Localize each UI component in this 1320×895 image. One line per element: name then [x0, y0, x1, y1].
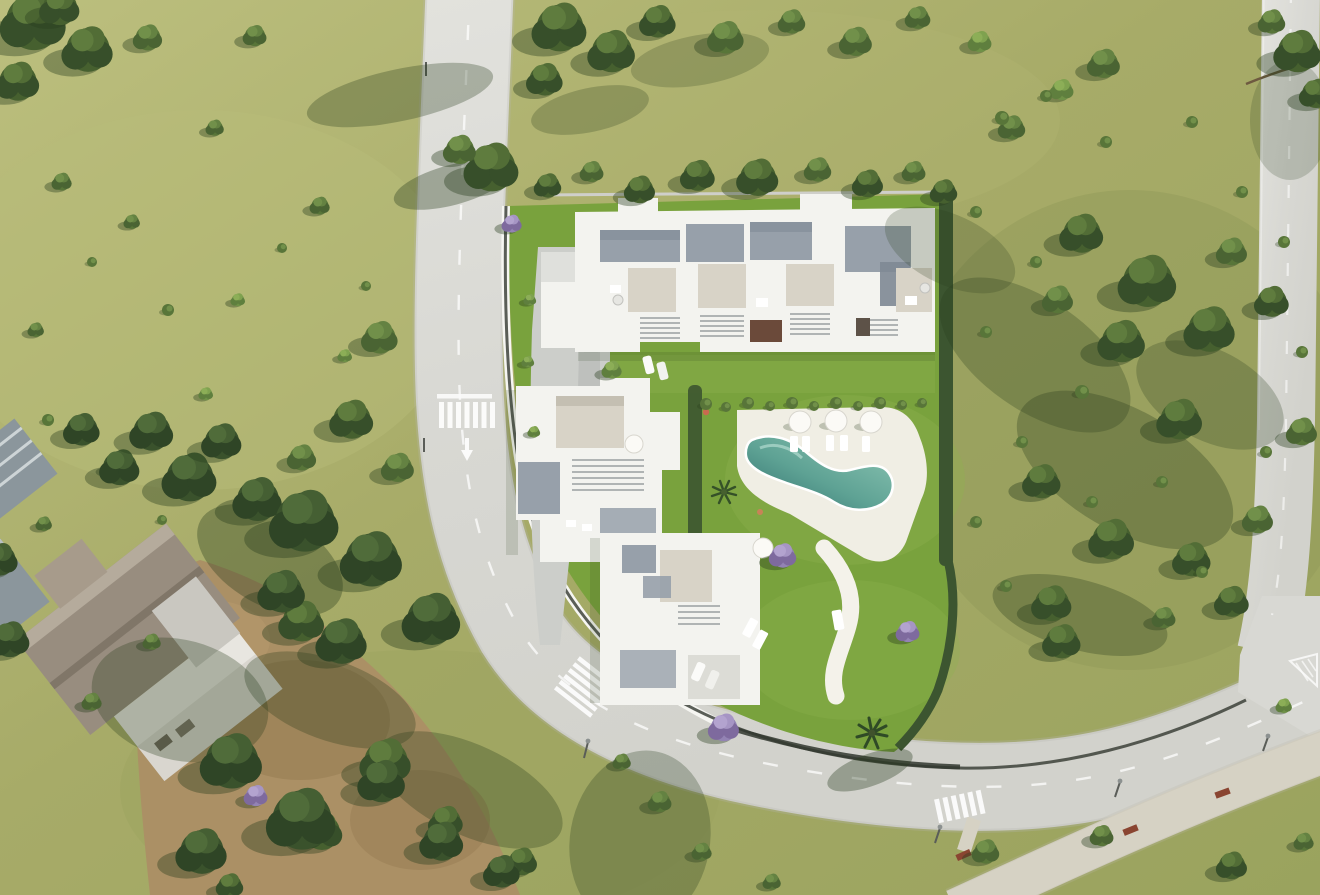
tree-canopy: [539, 175, 551, 187]
roof-table: [920, 283, 930, 293]
aerial-scene: [0, 0, 1320, 895]
tree-canopy: [695, 844, 704, 853]
tree-canopy: [1097, 521, 1117, 541]
tree-canopy: [449, 137, 463, 151]
gray-roof: [643, 576, 671, 598]
tree-canopy: [1093, 51, 1107, 65]
bush-highlight: [1000, 113, 1007, 120]
tree-canopy: [212, 737, 239, 764]
tree-canopy: [209, 426, 227, 444]
tree-canopy: [138, 26, 151, 39]
tree-canopy: [209, 121, 217, 129]
bush-highlight: [1265, 448, 1271, 454]
tree-canopy: [1222, 853, 1236, 867]
tree-canopy: [31, 323, 38, 330]
tree-canopy: [630, 177, 644, 191]
bush-highlight: [813, 402, 818, 407]
wood-deck: [750, 320, 782, 342]
tree-canopy: [366, 763, 387, 784]
roof-ridge-shade: [600, 230, 680, 240]
tree-canopy: [542, 6, 566, 30]
tree-canopy: [221, 875, 233, 887]
bush-highlight: [1005, 582, 1011, 588]
bush-highlight: [705, 400, 711, 406]
tree-canopy: [744, 161, 762, 179]
tree-canopy: [490, 857, 506, 873]
tree-canopy: [774, 545, 786, 557]
tree-canopy: [185, 831, 207, 853]
gray-roof: [518, 462, 560, 514]
bush-highlight: [975, 208, 981, 214]
tree-canopy: [1029, 466, 1046, 483]
tree-canopy: [530, 427, 536, 433]
bush-highlight: [1283, 238, 1289, 244]
roof-table: [613, 295, 623, 305]
tree-canopy: [505, 216, 514, 225]
tree-canopy: [340, 350, 346, 356]
tree-canopy: [809, 159, 821, 171]
garage-roof: [541, 252, 577, 282]
bush-highlight: [1201, 568, 1207, 574]
bush-highlight: [281, 244, 286, 249]
bush-highlight: [791, 399, 797, 405]
tree-canopy: [1048, 287, 1062, 301]
gray-roof: [686, 224, 744, 262]
tree-canopy: [172, 456, 196, 480]
tree-canopy: [512, 849, 526, 863]
tree-canopy: [55, 174, 64, 183]
bush-highlight: [769, 402, 774, 407]
tree-canopy: [845, 29, 859, 43]
tree-canopy: [1248, 507, 1262, 521]
tree-canopy: [906, 162, 916, 172]
tree-canopy: [616, 755, 624, 763]
tree-canopy: [1292, 419, 1306, 433]
tree-canopy: [935, 181, 947, 193]
tree-canopy: [714, 23, 730, 39]
tree-canopy: [368, 323, 384, 339]
pool-umbrella: [860, 411, 882, 433]
tree-canopy: [1094, 826, 1104, 836]
bush-highlight: [91, 258, 96, 263]
tree-canopy: [1165, 401, 1185, 421]
tree-canopy: [474, 146, 498, 170]
tree-canopy: [1068, 216, 1087, 235]
tree-canopy: [596, 33, 617, 54]
pool-umbrella: [789, 411, 811, 433]
tree-canopy: [282, 494, 312, 524]
tree-canopy: [325, 621, 347, 643]
bush-highlight: [365, 282, 370, 287]
bush-highlight: [1161, 478, 1167, 484]
tree-canopy: [39, 517, 46, 524]
outdoor-furniture: [856, 318, 870, 336]
tree-canopy: [428, 824, 447, 843]
bush-highlight: [857, 402, 862, 407]
pool-umbrellas: [783, 410, 882, 433]
tree-canopy: [766, 875, 774, 883]
tree-canopy: [1054, 80, 1064, 90]
bush-highlight: [725, 403, 730, 408]
tree-canopy: [1179, 544, 1196, 561]
roof-furniture: [905, 296, 917, 305]
tree-canopy: [783, 11, 795, 23]
tree-canopy: [313, 198, 322, 207]
building-shadow: [578, 352, 935, 361]
bush-highlight: [1045, 92, 1051, 98]
tree-canopy: [526, 295, 532, 301]
tree-canopy: [1156, 608, 1166, 618]
beige-roof: [628, 268, 676, 312]
tree-canopy: [352, 535, 379, 562]
tree-canopy: [533, 65, 549, 81]
terrace-furniture: [582, 524, 592, 531]
bush-highlight: [1191, 118, 1197, 124]
bush-highlight: [1080, 387, 1087, 394]
bush-highlight: [1035, 258, 1041, 264]
tree-canopy: [1222, 239, 1236, 253]
tree-canopy: [85, 694, 94, 703]
tree-canopy: [687, 162, 702, 177]
bush-highlight: [901, 401, 906, 406]
bush-highlight: [985, 328, 991, 334]
tree-canopy: [972, 32, 982, 42]
tree-canopy: [584, 162, 594, 172]
beige-roof: [698, 264, 746, 308]
tree-canopy: [858, 171, 872, 185]
bush-highlight: [1105, 138, 1111, 144]
tree-canopy: [233, 294, 239, 300]
beige-roof: [786, 264, 834, 306]
tree-canopy: [146, 635, 154, 643]
bush-highlight: [879, 399, 885, 405]
tree-canopy: [279, 792, 309, 822]
gray-roof: [620, 650, 676, 688]
tree-canopy: [646, 7, 662, 23]
tree-canopy: [1129, 258, 1155, 284]
tree-canopy: [107, 452, 125, 470]
tree-canopy: [138, 414, 157, 433]
roof-furniture: [610, 285, 621, 293]
tree-canopy: [387, 455, 401, 469]
terrace-furniture: [566, 520, 576, 527]
bush-highlight: [47, 416, 53, 422]
bush-highlight: [161, 516, 166, 521]
tree-canopy: [1261, 288, 1276, 303]
tree-canopy: [369, 741, 391, 763]
aerial-render-stage: Top-down aerial render of a modern white…: [0, 0, 1320, 895]
tree-canopy: [1193, 309, 1215, 331]
south-villa-cluster: [590, 533, 773, 705]
tree-canopy: [242, 480, 264, 502]
tree-canopy: [127, 215, 134, 222]
bush-highlight: [1091, 498, 1097, 504]
tree-canopy: [605, 362, 614, 371]
roof-furniture: [756, 298, 768, 307]
pool-umbrella: [825, 410, 847, 432]
tree-canopy: [652, 792, 662, 802]
tree-canopy: [1106, 323, 1127, 344]
tree-canopy: [1279, 699, 1286, 706]
tree-canopy: [1049, 626, 1066, 643]
tree-canopy: [71, 29, 93, 51]
gray-roof: [622, 545, 656, 573]
tree-canopy: [435, 808, 450, 823]
roof-ridge-shade: [556, 396, 624, 406]
flower-bush: [757, 509, 763, 515]
tree-canopy: [338, 402, 357, 421]
tree-canopy: [292, 446, 305, 459]
tree-canopy: [413, 596, 439, 622]
tree-canopy: [70, 415, 86, 431]
tree-canopy: [1039, 588, 1057, 606]
north-townhouse-block: [575, 194, 935, 381]
tree-canopy: [1221, 588, 1236, 603]
stop-line: [437, 394, 492, 399]
roof-ridge-shade: [750, 222, 812, 232]
tree-canopy: [247, 26, 257, 36]
patio-umbrella: [625, 435, 643, 453]
bush-highlight: [921, 399, 926, 404]
tree-canopy: [248, 786, 258, 796]
tree-canopy: [900, 622, 910, 632]
bush-highlight: [167, 306, 173, 312]
tree-canopy: [1282, 33, 1303, 54]
bush-highlight: [1241, 188, 1247, 194]
bush-highlight: [747, 399, 753, 405]
tree-canopy: [4, 64, 23, 83]
tree-canopy: [524, 357, 530, 363]
tree-canopy: [266, 573, 287, 594]
bush-highlight: [975, 518, 981, 524]
tree-canopy: [910, 8, 921, 19]
tree-canopy: [201, 388, 207, 394]
tree-canopy: [1297, 834, 1306, 843]
bush-highlight: [1021, 438, 1027, 444]
bush-highlight: [835, 399, 841, 405]
tree-canopy: [714, 715, 728, 729]
tree-canopy: [977, 841, 989, 853]
tree-canopy: [1263, 11, 1275, 23]
bush-highlight: [1301, 348, 1307, 354]
tree-canopy: [1305, 81, 1319, 95]
building-shadow: [590, 538, 601, 703]
